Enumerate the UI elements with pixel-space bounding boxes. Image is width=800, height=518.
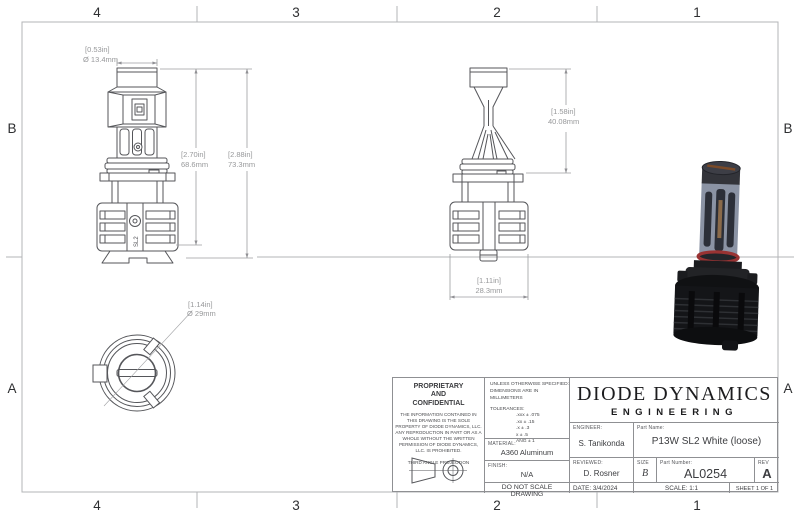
size-cell: SIZE B	[633, 457, 656, 482]
dimension-lines	[117, 59, 571, 300]
zone-top-3: 3	[292, 5, 300, 20]
rev-cell: REV A	[754, 457, 779, 482]
size-value: B	[634, 468, 656, 479]
material-value: A360 Aluminum	[485, 448, 569, 457]
dim-base-dia-mm: Ø 29mm	[187, 309, 216, 318]
company-logo-cell: DIODE DYNAMICS ENGINEERING	[569, 378, 779, 422]
zone-bottom-1: 1	[693, 498, 701, 513]
dim-overall-height-in: [2.88in]	[228, 150, 253, 159]
zone-left-b: B	[7, 121, 16, 136]
part-number-label: Part Number:	[660, 460, 692, 466]
zone-top-2: 2	[493, 5, 501, 20]
dim-cap-width-mm: Ø 13.4mm	[83, 55, 118, 64]
dim-base-dia-in: [1.14in]	[188, 300, 213, 309]
zone-right-b: B	[783, 121, 792, 136]
side-view	[450, 68, 528, 261]
date-value: 3/4/2024	[593, 485, 618, 492]
reviewed-name: D. Rosner	[570, 469, 633, 478]
dim-body-height-mm: 68.6mm	[181, 160, 208, 169]
engineering-drawing-sheet: 4 3 2 1 4 3 2 1 B A B A	[0, 0, 800, 518]
proprietary-heading: PROPRIETARY AND CONFIDENTIAL	[393, 383, 484, 408]
zone-bottom-4: 4	[93, 498, 101, 513]
proprietary-cell: PROPRIETARY AND CONFIDENTIAL THE INFORMA…	[393, 378, 484, 493]
tolerances-cell: UNLESS OTHERWISE SPECIFIED: DIMENSIONS A…	[484, 378, 569, 438]
scale-cell: SCALE: 1:1	[633, 482, 729, 493]
zone-left-a: A	[7, 381, 16, 396]
part-marking-sl2: SL2	[134, 236, 140, 247]
unless-line2: DIMENSIONS ARE IN MILLIMETERS	[490, 388, 569, 402]
reviewed-label: REVIEWED:	[573, 460, 603, 466]
dim-cap-width-in: [0.53in]	[85, 45, 110, 54]
dim-overall-height-mm: 73.3mm	[228, 160, 255, 169]
zone-bottom-2: 2	[493, 498, 501, 513]
part-number-cell: Part Number: AL0254	[656, 457, 754, 482]
dim-body-height-in: [2.70in]	[181, 150, 206, 159]
part-name-label: Part Name:	[637, 425, 664, 431]
finish-cell: FINISH: N/A	[484, 460, 569, 482]
proprietary-line3: CONFIDENTIAL	[393, 400, 484, 408]
zone-right-a: A	[783, 381, 792, 396]
sheet-cell: SHEET 1 OF 1	[729, 482, 779, 493]
material-cell: MATERIAL: A360 Aluminum	[484, 438, 569, 460]
third-angle-projection-icon	[409, 456, 467, 486]
unless-line1: UNLESS OTHERWISE SPECIFIED:	[490, 381, 569, 388]
isometric-render	[673, 160, 764, 351]
date-label: DATE:	[573, 485, 591, 492]
reviewed-cell: REVIEWED: D. Rosner	[569, 457, 633, 482]
rev-value: A	[755, 466, 779, 481]
part-number-value: AL0254	[657, 467, 754, 481]
bottom-view	[93, 311, 192, 411]
dim-base-width-in: [1.11in]	[477, 276, 501, 285]
company-name: DIODE DYNAMICS	[570, 383, 779, 406]
zone-bottom-3: 3	[292, 498, 300, 513]
proprietary-body: THE INFORMATION CONTAINED IN THIS DRAWIN…	[395, 412, 482, 454]
dim-tip-height-mm: 40.08mm	[548, 117, 579, 126]
size-label: SIZE	[637, 460, 649, 466]
date-cell: DATE: 3/4/2024	[569, 482, 633, 493]
company-division: ENGINEERING	[570, 407, 779, 418]
zone-top-1: 1	[693, 5, 701, 20]
scale-value: SCALE: 1:1	[634, 485, 729, 492]
part-name-value: P13W SL2 White (loose)	[634, 436, 779, 447]
part-name-cell: Part Name: P13W SL2 White (loose)	[633, 422, 779, 457]
engineer-name: S. Tanikonda	[570, 439, 633, 448]
sheet-value: SHEET 1 OF 1	[730, 486, 779, 492]
dim-base-width-mm: 28.3mm	[475, 286, 502, 295]
zone-top-4: 4	[93, 5, 101, 20]
front-view: SL2	[97, 68, 178, 263]
title-block: PROPRIETARY AND CONFIDENTIAL THE INFORMA…	[392, 377, 778, 492]
proprietary-line1: PROPRIETARY	[393, 383, 484, 391]
finish-value: N/A	[485, 470, 569, 479]
dim-tip-height-in: [1.58in]	[551, 107, 576, 116]
material-label: MATERIAL:	[488, 441, 516, 447]
do-not-scale-note: DO NOT SCALE DRAWING	[485, 484, 569, 498]
engineer-cell: ENGINEER: S. Tanikonda	[569, 422, 633, 457]
finish-label: FINISH:	[488, 463, 507, 469]
proprietary-line2: AND	[393, 391, 484, 399]
do-not-scale-cell: DO NOT SCALE DRAWING	[484, 482, 569, 493]
engineer-label: ENGINEER:	[573, 425, 602, 431]
